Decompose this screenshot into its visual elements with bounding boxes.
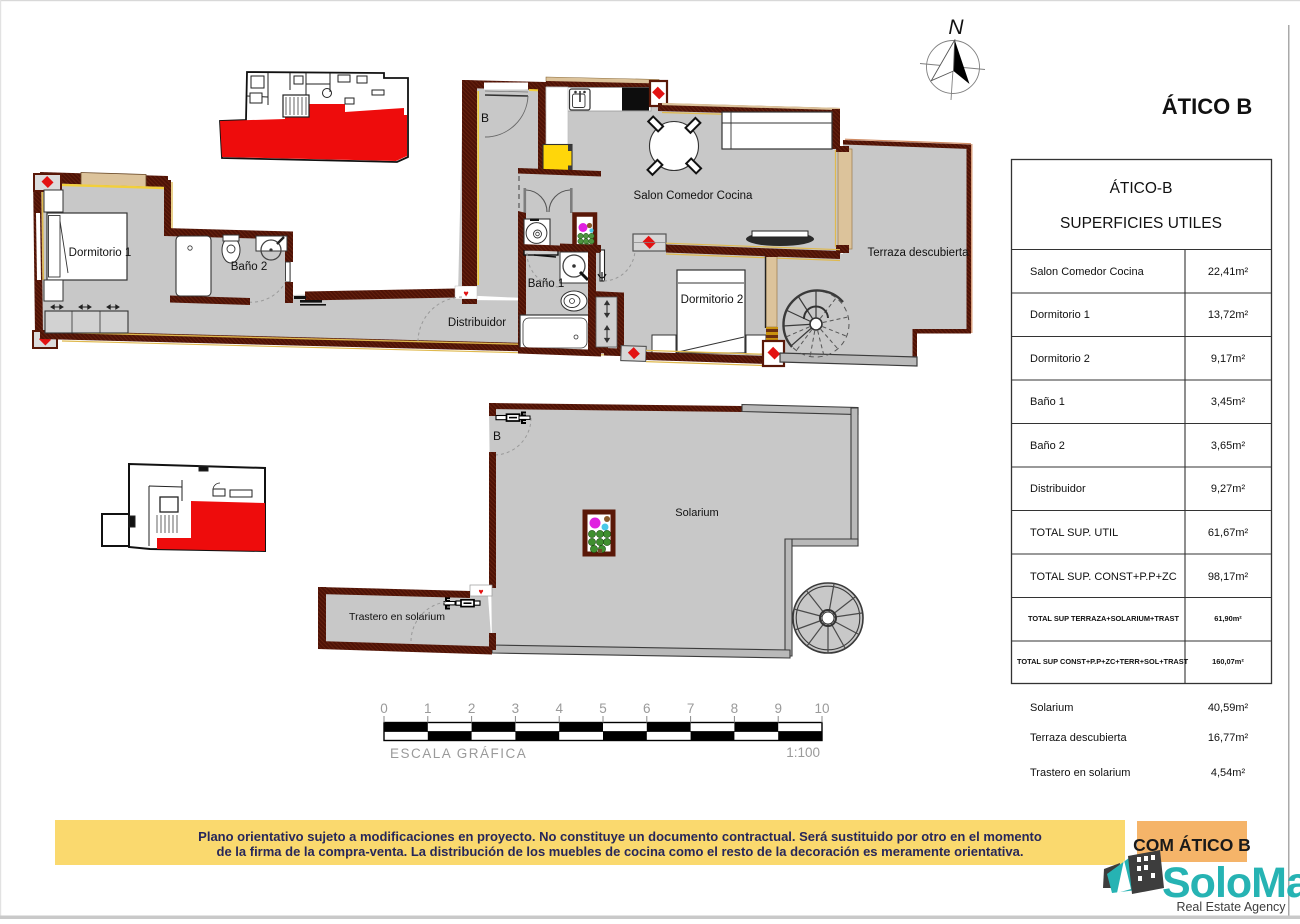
svg-text:Real Estate Agency: Real Estate Agency <box>1176 900 1286 914</box>
svg-text:3: 3 <box>512 701 520 716</box>
svg-text:Baño 2: Baño 2 <box>1030 440 1065 452</box>
svg-text:Distribuidor: Distribuidor <box>1030 483 1086 495</box>
svg-text:ÁTICO B: ÁTICO B <box>1162 94 1252 119</box>
svg-text:♥: ♥ <box>463 289 468 299</box>
svg-text:160,07m²: 160,07m² <box>1212 657 1244 666</box>
svg-text:6: 6 <box>643 701 651 716</box>
svg-text:40,59m²: 40,59m² <box>1208 702 1249 714</box>
svg-text:Dormitorio 1: Dormitorio 1 <box>1030 309 1090 321</box>
svg-text:2: 2 <box>468 701 476 716</box>
svg-text:98,17m²: 98,17m² <box>1208 571 1249 583</box>
svg-text:8: 8 <box>731 701 739 716</box>
svg-text:ÁTICO-B: ÁTICO-B <box>1110 180 1173 197</box>
svg-text:Trastero en solarium: Trastero en solarium <box>349 611 445 623</box>
svg-text:TOTAL SUP. CONST+P.P+ZC: TOTAL SUP. CONST+P.P+ZC <box>1030 571 1177 583</box>
svg-text:de la firma de la compra-venta: de la firma de la compra-venta. La distr… <box>217 844 1024 859</box>
svg-text:9,27m²: 9,27m² <box>1211 483 1246 495</box>
svg-text:10: 10 <box>814 701 829 716</box>
svg-text:Salon Comedor Cocina: Salon Comedor Cocina <box>634 190 754 202</box>
svg-text:Baño 2: Baño 2 <box>231 261 267 273</box>
svg-text:0: 0 <box>380 701 388 716</box>
svg-text:Plano orientativo sujeto a mod: Plano orientativo sujeto a modificacione… <box>198 829 1042 844</box>
svg-text:4: 4 <box>555 701 563 716</box>
svg-text:Baño 1: Baño 1 <box>1030 396 1065 408</box>
svg-text:3,65m²: 3,65m² <box>1211 440 1246 452</box>
svg-text:Salon Comedor Cocina: Salon Comedor Cocina <box>1030 266 1145 278</box>
svg-text:61,90m²: 61,90m² <box>1214 614 1242 623</box>
svg-text:TOTAL SUP TERRAZA+SOLARIUM+TRA: TOTAL SUP TERRAZA+SOLARIUM+TRAST <box>1028 614 1179 623</box>
svg-text:Solarium: Solarium <box>675 507 718 519</box>
svg-text:1:100: 1:100 <box>786 745 820 760</box>
svg-text:SUPERFICIES UTILES: SUPERFICIES UTILES <box>1060 215 1222 232</box>
svg-text:Terraza descubierta: Terraza descubierta <box>868 247 970 259</box>
svg-text:5: 5 <box>599 701 607 716</box>
svg-text:7: 7 <box>687 701 695 716</box>
svg-text:3,45m²: 3,45m² <box>1211 396 1246 408</box>
svg-text:TOTAL SUP CONST+P.P+ZC+TERR+SO: TOTAL SUP CONST+P.P+ZC+TERR+SOL+TRAST <box>1017 657 1189 666</box>
svg-text:16,77m²: 16,77m² <box>1208 732 1249 744</box>
svg-text:9: 9 <box>774 701 782 716</box>
svg-text:13,72m²: 13,72m² <box>1208 309 1249 321</box>
svg-text:Dormitorio 2: Dormitorio 2 <box>681 294 744 306</box>
svg-text:61,67m²: 61,67m² <box>1208 527 1249 539</box>
svg-text:9,17m²: 9,17m² <box>1211 353 1246 365</box>
svg-text:Terraza descubierta: Terraza descubierta <box>1030 732 1127 744</box>
svg-text:TOTAL SUP. UTIL: TOTAL SUP. UTIL <box>1030 527 1118 539</box>
svg-text:Distribuidor: Distribuidor <box>448 317 506 329</box>
svg-text:1: 1 <box>424 701 432 716</box>
svg-text:Baño 1: Baño 1 <box>528 278 564 290</box>
svg-text:Solarium: Solarium <box>1030 702 1073 714</box>
svg-text:22,41m²: 22,41m² <box>1208 266 1249 278</box>
svg-text:Dormitorio 1: Dormitorio 1 <box>69 247 132 259</box>
svg-text:ESCALA GRÁFICA: ESCALA GRÁFICA <box>390 746 527 761</box>
svg-text:B: B <box>481 111 489 125</box>
svg-text:B: B <box>493 429 501 443</box>
svg-text:Trastero en solarium: Trastero en solarium <box>1030 767 1130 779</box>
svg-text:Dormitorio 2: Dormitorio 2 <box>1030 353 1090 365</box>
svg-text:4,54m²: 4,54m² <box>1211 767 1246 779</box>
svg-text:♥: ♥ <box>478 587 483 597</box>
svg-text:N: N <box>948 16 964 39</box>
